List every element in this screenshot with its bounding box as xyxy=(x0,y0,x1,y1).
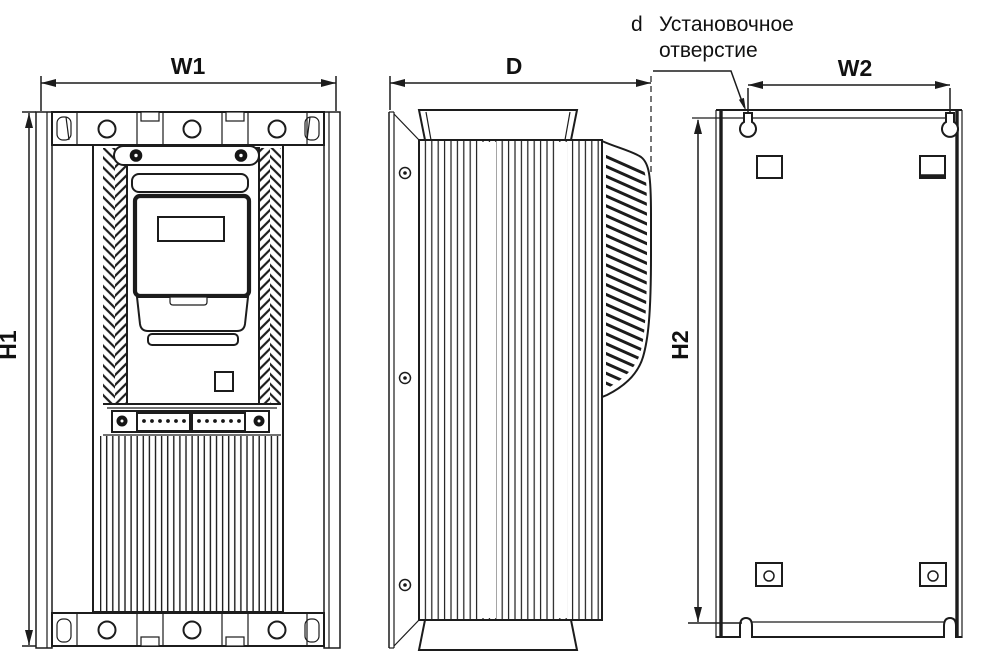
screw-hole xyxy=(928,571,938,581)
top-mounting-plate xyxy=(52,112,324,145)
dimension-label-h1: H1 xyxy=(0,330,21,360)
mounting-hole-callout: d Установочное отверстие xyxy=(631,13,794,111)
dimensional-drawing: W1 H1 D W2 H2 d Установочное отвер xyxy=(0,0,1004,668)
bottom-plate-hole xyxy=(269,622,286,639)
dimension-d: D xyxy=(390,53,651,110)
rear-plate-bottom-edge xyxy=(716,618,962,637)
cover-screw-bar xyxy=(114,146,259,165)
front-left-flange xyxy=(36,112,52,648)
square-hole xyxy=(756,563,782,586)
front-right-flange xyxy=(324,112,340,648)
keypad-panel xyxy=(135,196,249,345)
dimension-w2: W2 xyxy=(748,55,950,113)
keyhole-mounting-slot xyxy=(740,113,756,137)
side-flange xyxy=(389,112,419,648)
dimension-w1: W1 xyxy=(41,53,336,111)
bottom-plate-hole xyxy=(99,622,116,639)
callout-symbol: d xyxy=(631,13,643,36)
terminal-block-assembly xyxy=(103,404,281,435)
dimension-h2: H2 xyxy=(667,119,742,623)
dimension-label-w1: W1 xyxy=(171,53,206,79)
side-fin-body xyxy=(419,140,602,620)
screw-hole xyxy=(764,571,774,581)
callout-text-line2: отверстие xyxy=(659,39,758,62)
dimension-label-d: D xyxy=(506,53,523,79)
square-hole xyxy=(920,563,946,586)
callout-text-line1: Установочное xyxy=(659,13,794,36)
drawing-canvas: W1 H1 D W2 H2 d Установочное отвер xyxy=(0,0,1004,668)
side-top-tab xyxy=(419,110,577,140)
front-lower-fins xyxy=(100,436,283,612)
side-view xyxy=(389,76,651,650)
dimension-label-w2: W2 xyxy=(838,55,873,81)
top-plate-hole xyxy=(99,121,116,138)
square-knockout xyxy=(757,156,782,178)
side-front-cover xyxy=(602,141,651,397)
top-plate-hole xyxy=(184,121,201,138)
dimension-label-h2: H2 xyxy=(667,330,693,359)
flip-cover-notch xyxy=(170,297,207,305)
bottom-mounting-plate xyxy=(52,613,324,646)
leader-line xyxy=(653,71,744,107)
bottom-plate-hole xyxy=(184,622,201,639)
front-view xyxy=(36,112,340,648)
top-plate-hole xyxy=(269,121,286,138)
dimension-h1: H1 xyxy=(0,112,36,646)
rear-view xyxy=(692,110,962,638)
side-bottom-tab xyxy=(419,620,577,650)
corner-cutout xyxy=(57,619,71,642)
